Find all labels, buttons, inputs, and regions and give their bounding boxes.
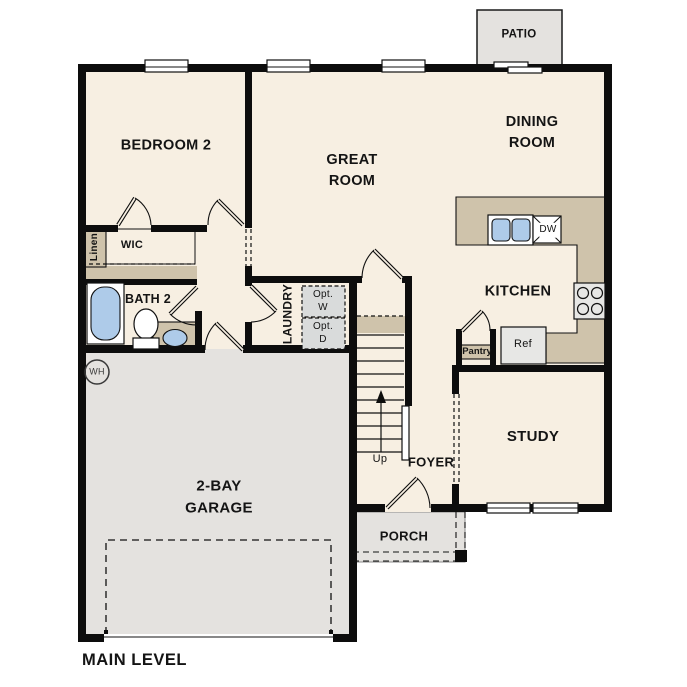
window-icon (145, 60, 188, 72)
stair-landing (357, 316, 405, 333)
stair-rail (402, 406, 409, 460)
water-heater-label: WH (89, 365, 105, 378)
room-label-bath2: BATH 2 (125, 290, 171, 308)
toilet-icon (133, 309, 159, 349)
window-icon (382, 60, 425, 72)
porch-post (455, 550, 467, 562)
room-label-foyer: FOYER (408, 454, 454, 473)
fixture-label-opt-w: Opt. W (313, 288, 333, 314)
window-icon (533, 503, 578, 513)
kitchen-sink-icon (488, 215, 533, 245)
garage-door-opening (104, 634, 333, 642)
window-icon (267, 60, 310, 72)
room-label-linen: Linen (88, 233, 103, 261)
fixture-label-dw: DW (539, 223, 556, 238)
bathtub-icon (87, 283, 124, 344)
fixture-label-ref: Ref (514, 337, 532, 353)
room-label-patio: PATIO (502, 27, 537, 44)
bath-sink-icon (163, 330, 187, 347)
fixture-label-pantry: Pantry (462, 345, 492, 359)
room-label-laundry: LAUNDRY (279, 284, 296, 344)
wic-shelf (85, 266, 197, 280)
room-label-kitchen: KITCHEN (485, 281, 552, 302)
fixture-label-opt-d: Opt. D (313, 320, 333, 346)
room-label-dining-room: DINING ROOM (506, 112, 559, 154)
plan-title: MAIN LEVEL (82, 649, 187, 673)
stove-icon (574, 283, 605, 319)
room-label-porch: PORCH (380, 528, 428, 547)
room-label-great-room: GREAT ROOM (326, 150, 377, 192)
room-label-garage: 2-BAY GARAGE (185, 475, 253, 519)
floor-plan: PATIO BEDROOM 2 GREAT ROOM DINING ROOM K… (0, 0, 687, 687)
room-label-wic: WIC (121, 238, 143, 254)
room-label-study: STUDY (507, 426, 559, 448)
window-icon (487, 503, 530, 513)
room-label-bedroom2: BEDROOM 2 (121, 135, 212, 156)
stairs-up-label: Up (373, 452, 388, 468)
floor-plan-drawing (0, 0, 687, 687)
